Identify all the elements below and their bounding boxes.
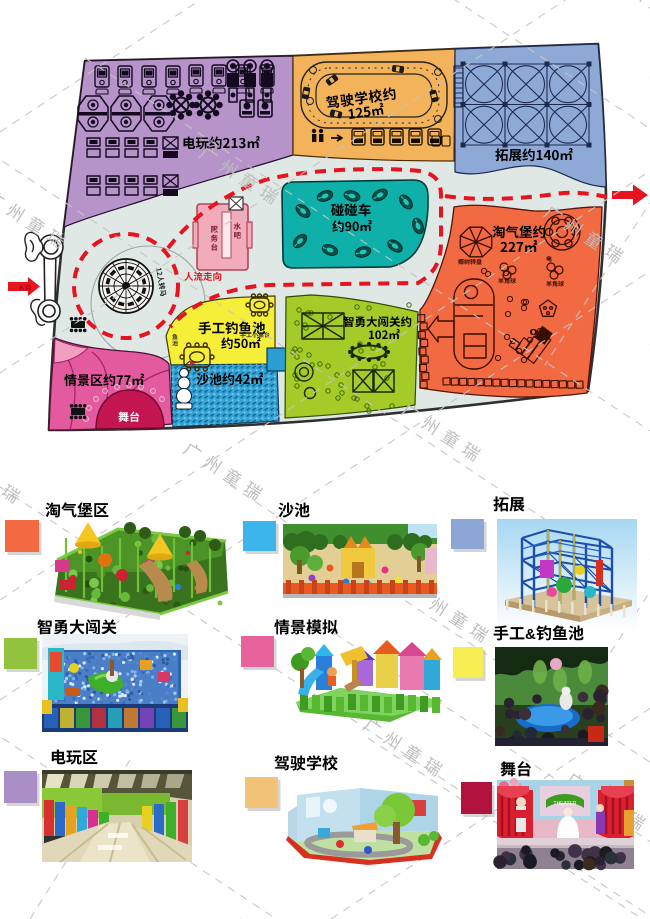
svg-text:&: & <box>525 626 536 643</box>
svg-text:THEATER: THEATER <box>554 801 577 807</box>
